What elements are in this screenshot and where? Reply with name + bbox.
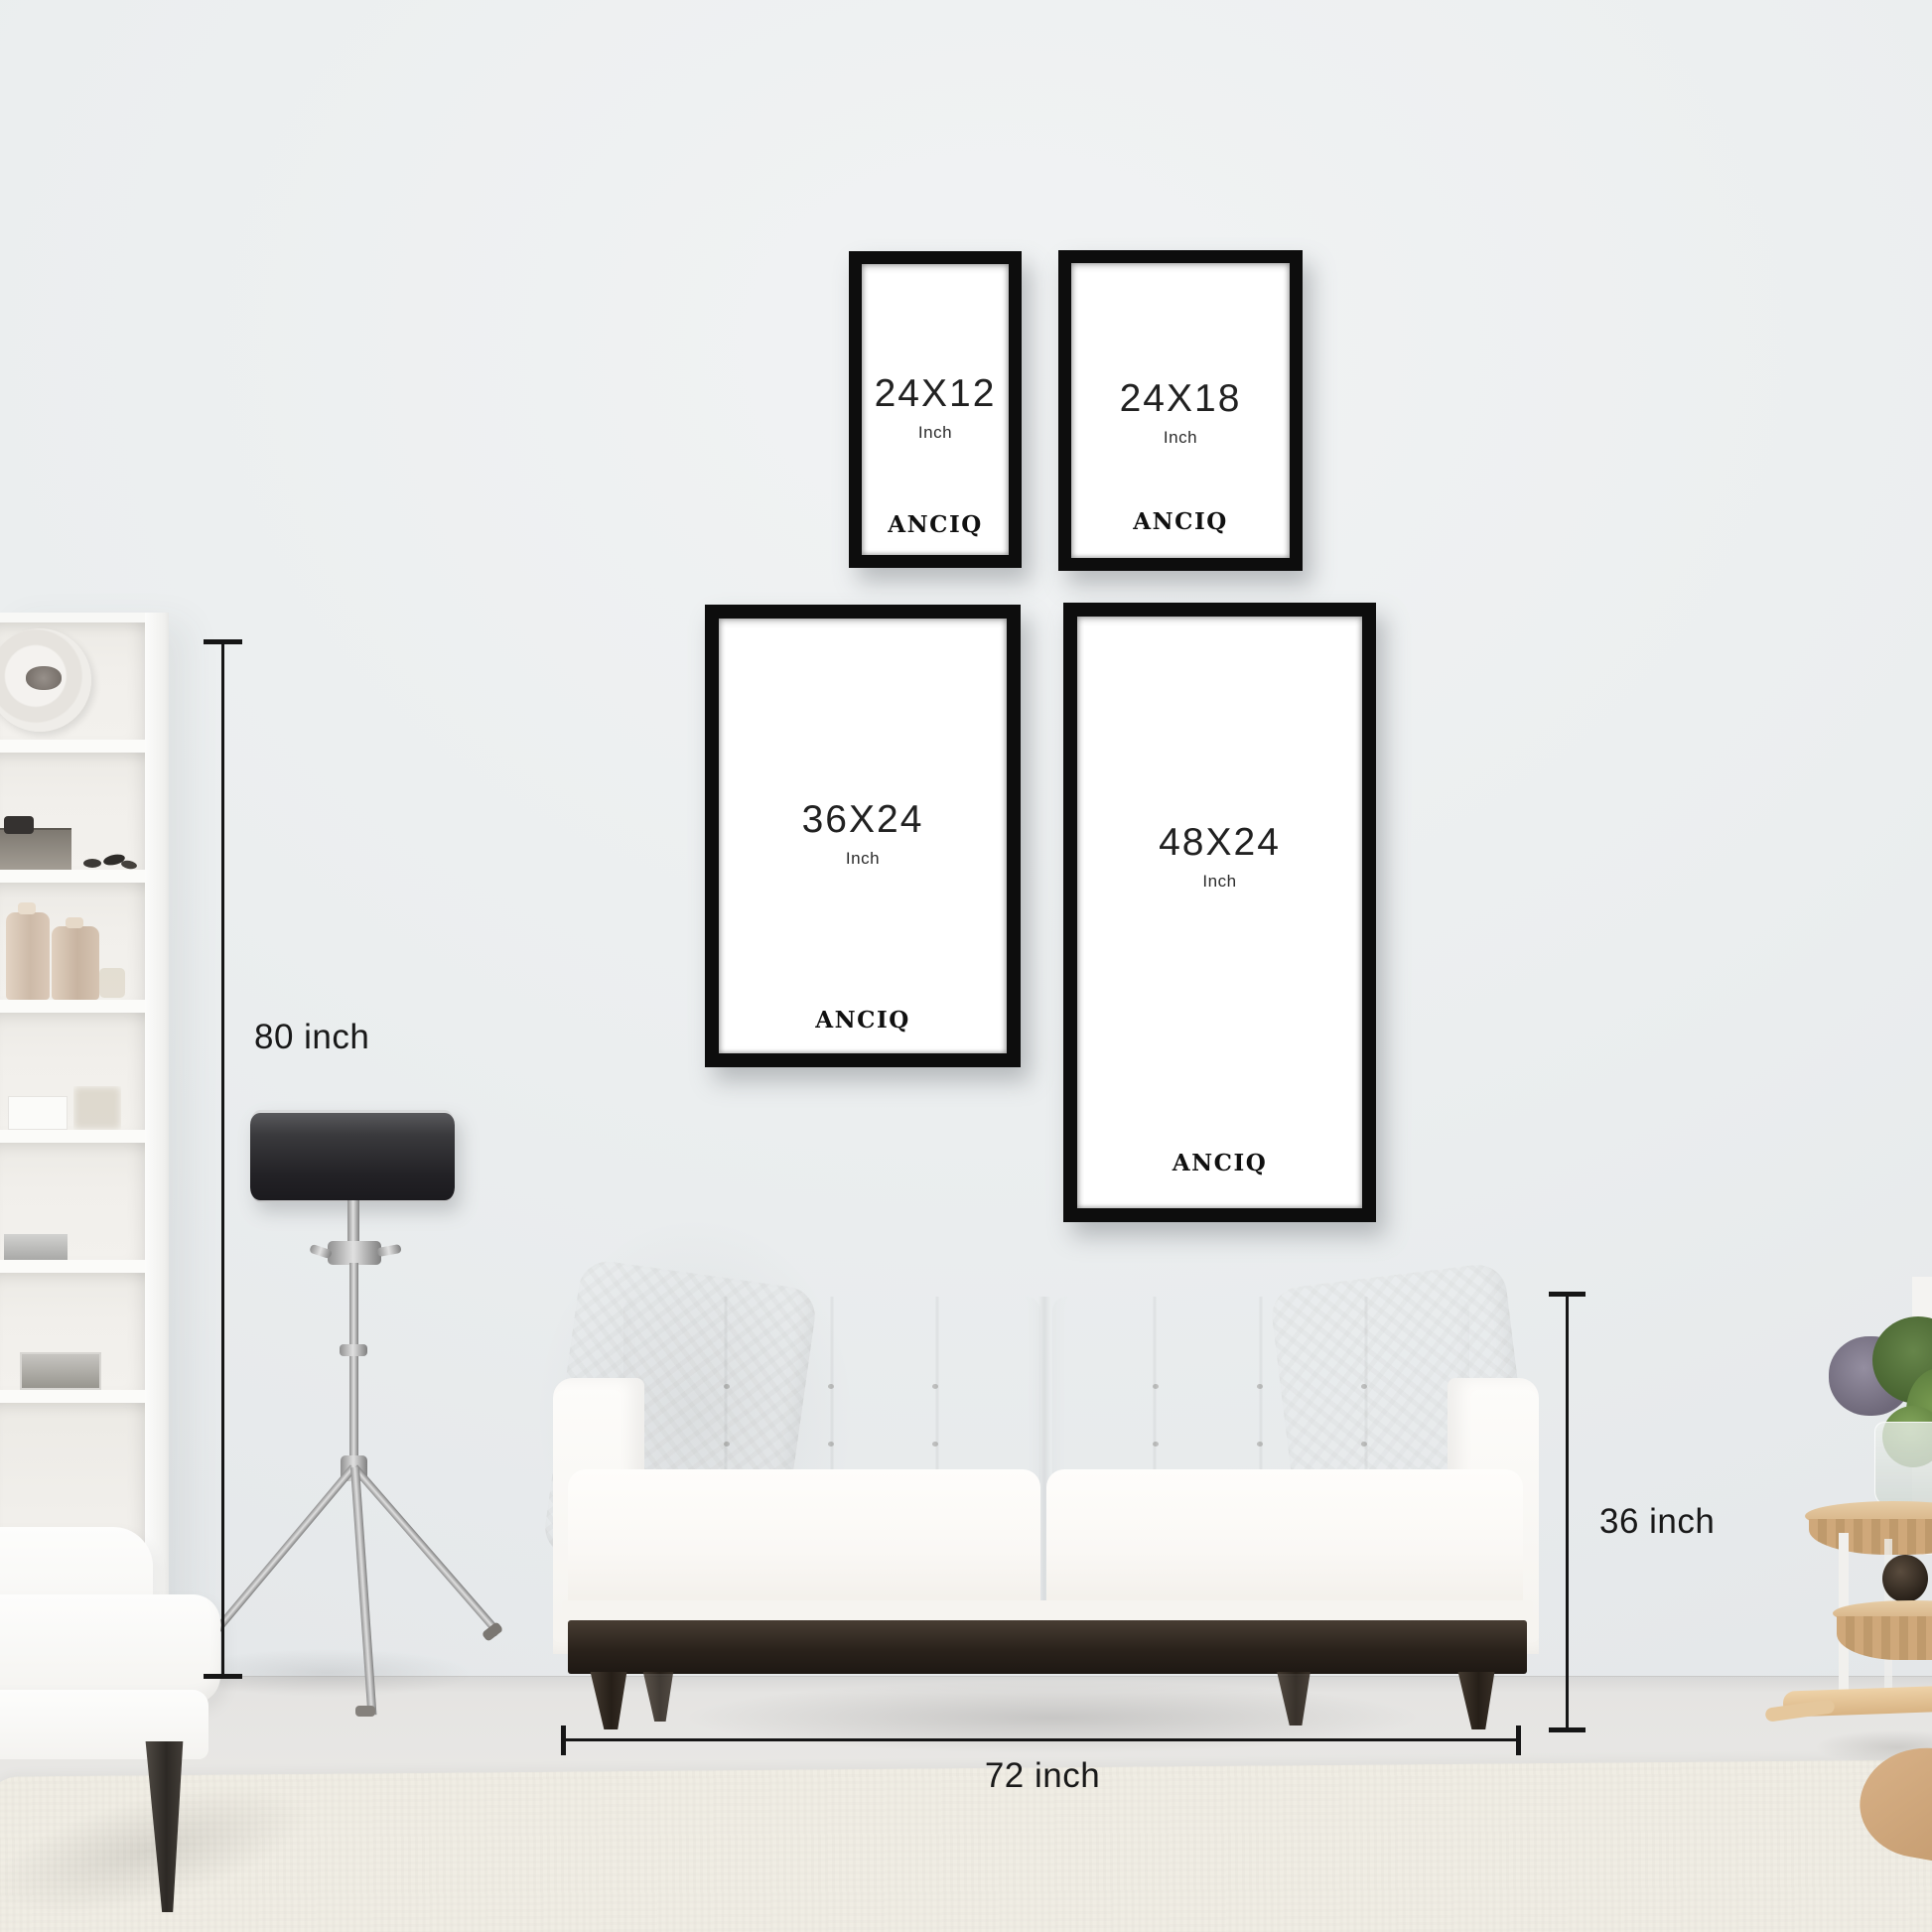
decor-sphere	[1882, 1555, 1928, 1602]
decor-jar	[99, 968, 125, 998]
lamp-stem	[347, 1200, 359, 1244]
bookshelf-side-panel	[145, 613, 169, 1683]
decor-object	[4, 816, 34, 834]
dimension-label-72-inch: 72 inch	[951, 1757, 1134, 1795]
frame-brand-logo: ANCIQ	[862, 512, 1009, 538]
shelf-board	[0, 1130, 145, 1144]
decor-frame-box	[20, 1352, 101, 1390]
frame-unit-label: Inch	[1071, 428, 1290, 448]
dimension-line-vertical-80	[221, 641, 224, 1679]
bookshelf-compartment	[0, 1013, 145, 1130]
dimension-cap-top	[1549, 1292, 1586, 1297]
lamp-foot	[482, 1621, 504, 1642]
sofa-seat-cushion-right	[1046, 1469, 1523, 1618]
frame-unit-label: Inch	[1077, 872, 1362, 892]
frame-brand-logo: ANCIQ	[1071, 509, 1290, 535]
glass-vase	[1874, 1422, 1932, 1507]
frame-size-label: 48X24	[1077, 822, 1362, 864]
bottle-stopper	[18, 902, 36, 914]
picture-frame-24x18: 24X18 Inch ANCIQ	[1058, 250, 1303, 571]
dimension-cap-right	[1516, 1725, 1521, 1755]
bottle-stopper	[66, 917, 83, 928]
lamp-foot	[355, 1706, 375, 1717]
bookshelf-compartment	[0, 883, 145, 1000]
shelf-board	[0, 870, 145, 884]
frame-unit-label: Inch	[862, 423, 1009, 443]
lamp-clamp	[328, 1241, 381, 1265]
dimension-cap-bottom	[1549, 1727, 1586, 1732]
bookshelf-compartment	[0, 1143, 145, 1260]
lamp-tripod-leg	[351, 1464, 502, 1636]
dimension-cap-top	[204, 639, 242, 644]
frame-brand-logo: ANCIQ	[1077, 1151, 1362, 1176]
shelf-board	[0, 1390, 145, 1404]
bookshelf-compartment	[0, 622, 145, 740]
dimension-label-36-inch: 36 inch	[1599, 1503, 1715, 1541]
sofa-wood-base	[568, 1620, 1527, 1674]
frame-size-label: 36X24	[719, 799, 1007, 841]
shelf-board	[0, 1260, 145, 1274]
dimension-line-horizontal-72	[563, 1738, 1520, 1741]
sofa-seat-cushion-left	[568, 1469, 1040, 1618]
dimension-line-vertical-36	[1566, 1294, 1569, 1730]
dimension-cap-bottom	[204, 1674, 242, 1679]
decor-object	[83, 859, 101, 868]
decor-object	[120, 860, 137, 871]
decor-bottle	[6, 912, 50, 1000]
decor-glass-cube	[73, 1086, 121, 1130]
dimension-cap-left	[561, 1725, 566, 1755]
bookshelf-compartment	[0, 753, 145, 870]
picture-frame-24x12: 24X12 Inch ANCIQ	[849, 251, 1022, 568]
frame-unit-label: Inch	[719, 849, 1007, 869]
decor-white-box	[8, 1096, 68, 1130]
armchair-seat-cushion	[0, 1594, 220, 1704]
decor-box	[0, 830, 71, 870]
decor-silver-box	[4, 1234, 68, 1260]
lamp-shade	[250, 1110, 455, 1202]
table-top-edge	[1809, 1519, 1932, 1555]
lamp-pole	[349, 1263, 358, 1469]
dimension-label-80-inch: 80 inch	[254, 1019, 369, 1056]
living-room-scene: 24X12 Inch ANCIQ 24X18 Inch ANCIQ 36X24 …	[0, 0, 1932, 1932]
frame-size-label: 24X18	[1071, 378, 1290, 420]
decor-bottle	[52, 926, 99, 1000]
bookshelf	[0, 613, 169, 1683]
picture-frame-36x24: 36X24 Inch ANCIQ	[705, 605, 1021, 1067]
lamp-knob	[340, 1344, 367, 1356]
frame-size-label: 24X12	[862, 373, 1009, 415]
shelf-board	[0, 1000, 145, 1014]
picture-frame-48x24: 48X24 Inch ANCIQ	[1063, 603, 1376, 1222]
plate-pattern	[26, 666, 62, 690]
bookshelf-compartment	[0, 1273, 145, 1390]
shelf-board	[0, 740, 145, 754]
table-lower-edge	[1837, 1616, 1932, 1660]
frame-brand-logo: ANCIQ	[719, 1008, 1007, 1034]
